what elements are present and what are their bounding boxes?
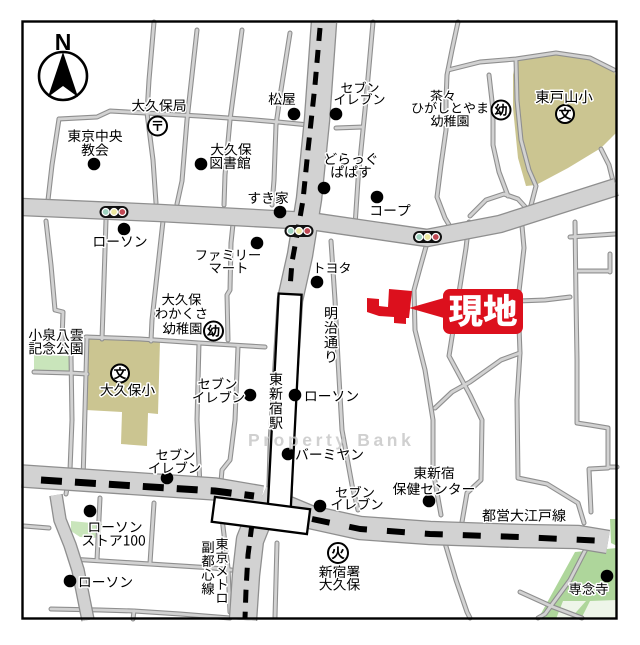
svg-text:N: N <box>55 29 72 55</box>
svg-text:Property Bank: Property Bank <box>248 430 414 450</box>
